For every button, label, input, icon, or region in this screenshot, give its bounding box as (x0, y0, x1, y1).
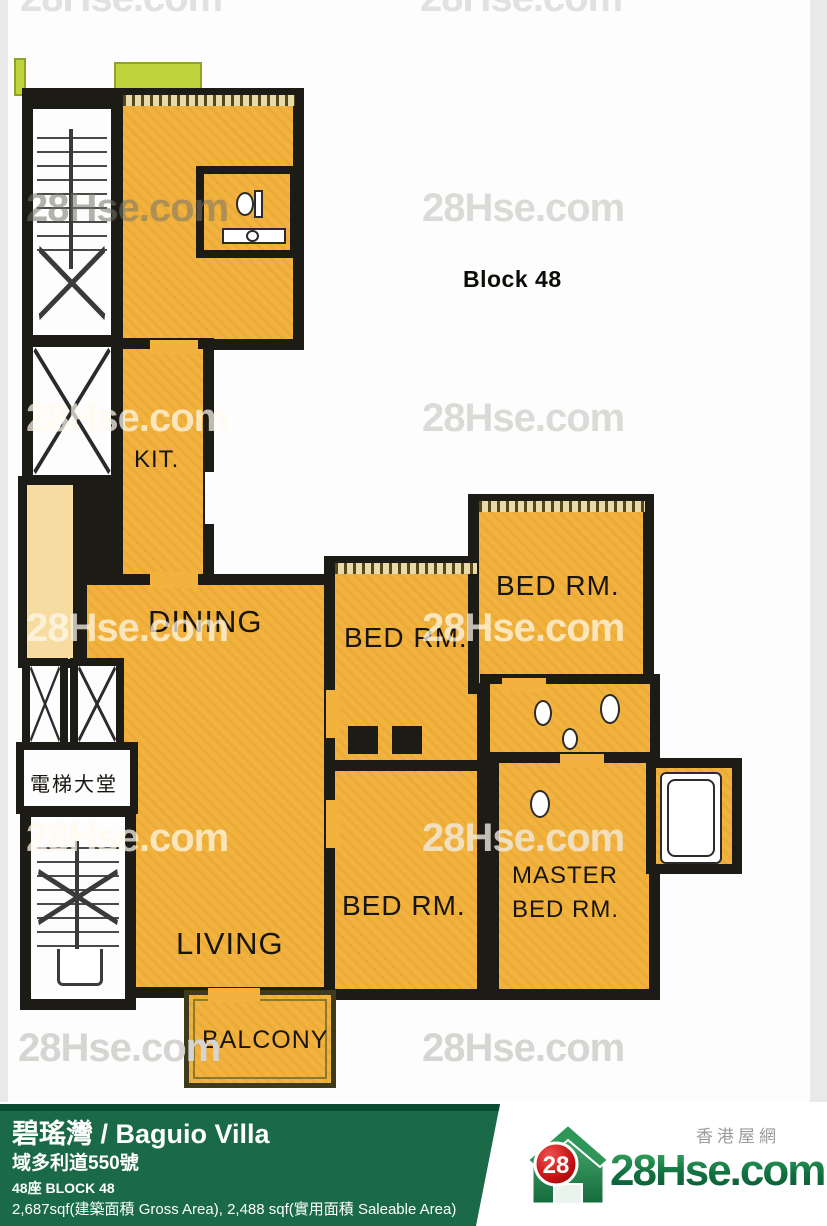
estate-area: 2,687sqf(建築面積 Gross Area), 2,488 sqf(實用面… (12, 1198, 456, 1219)
master-bedroom-label-line1: MASTER (512, 862, 618, 890)
door-opening (150, 340, 198, 354)
lift-lobby: 電梯大堂 (16, 742, 138, 814)
service-corridor (18, 476, 82, 668)
stairwell-bottom (20, 806, 136, 1010)
lift-shaft-large (22, 336, 122, 486)
kitchen-label: KIT. (134, 446, 179, 474)
footer-bar-top-edge (0, 1104, 500, 1111)
door-opening (326, 690, 340, 738)
badge-28: 28 (543, 1152, 570, 1179)
lift-x-icon (78, 666, 116, 742)
bathtub-icon (660, 772, 722, 864)
footer-info-bar: 碧瑤灣 / Baguio Villa 域多利道550號 48座 BLOCK 48… (0, 1104, 500, 1226)
watermark: 28Hse.com (20, 0, 222, 21)
toilet-cistern-icon (254, 190, 263, 218)
window-foyer (123, 95, 295, 106)
logo-tagline: 香港屋網 (696, 1122, 780, 1147)
lift-shaft-small-right (70, 658, 124, 750)
toilet-icon (236, 192, 254, 216)
sink-icon (530, 790, 550, 818)
dining-label: DINING (148, 604, 263, 640)
door-opening (205, 472, 217, 524)
bedroom-label: BED RM. (496, 570, 620, 602)
door-opening (150, 572, 198, 588)
watermark: 28Hse.com (422, 186, 624, 231)
lift-x-icon (33, 347, 111, 475)
wardrobe-block (392, 726, 422, 754)
sink-icon (246, 230, 259, 242)
bathtub-inner-line (667, 779, 715, 857)
right-gutter (810, 0, 827, 1102)
balcony-label: BALCONY (202, 1026, 328, 1055)
floorplan-page: 電梯大堂 KIT. DINING LIVING BED RM. BED RM. … (0, 0, 827, 1226)
door-opening (326, 800, 340, 848)
toilet-icon (534, 700, 552, 726)
28hse-logo[interactable]: 28 28Hse.com 香港屋網 (524, 1112, 814, 1220)
watermark: 28Hse.com (422, 396, 624, 441)
window-bedroom-right (479, 501, 645, 512)
block-title: Block 48 (463, 266, 562, 293)
window-bedroom-center (335, 563, 477, 574)
left-gutter (0, 0, 8, 1102)
door-opening (208, 988, 260, 1002)
living-label: LIVING (176, 926, 284, 962)
lift-shaft-small-left (22, 658, 68, 750)
logo-wordmark: 28Hse.com (610, 1146, 824, 1196)
bedroom-label: BED RM. (344, 622, 468, 654)
lift-lobby-label: 電梯大堂 (30, 768, 118, 797)
bedroom-label: BED RM. (342, 890, 466, 922)
sink-icon (600, 694, 620, 724)
stair-door-symbol (57, 949, 103, 986)
house-icon: 28 (524, 1118, 612, 1210)
wall-stub-kitchen-left (80, 470, 114, 578)
door-opening (560, 754, 604, 768)
estate-address: 域多利道550號 (12, 1148, 139, 1175)
estate-block: 48座 BLOCK 48 (12, 1178, 115, 1198)
watermark: 28Hse.com (422, 1026, 624, 1071)
estate-title: 碧瑤灣 / Baguio Villa (12, 1112, 270, 1151)
lift-x-icon (30, 666, 60, 742)
master-bedroom-label-line2: BED RM. (512, 896, 619, 924)
door-opening (502, 678, 546, 692)
watermark: 28Hse.com (420, 0, 622, 21)
stair-cross-lines (33, 109, 111, 335)
sink-icon (562, 728, 578, 750)
stairwell-top (22, 98, 122, 346)
room-bedroom-center-bottom (324, 760, 488, 1000)
wardrobe-block (348, 726, 378, 754)
